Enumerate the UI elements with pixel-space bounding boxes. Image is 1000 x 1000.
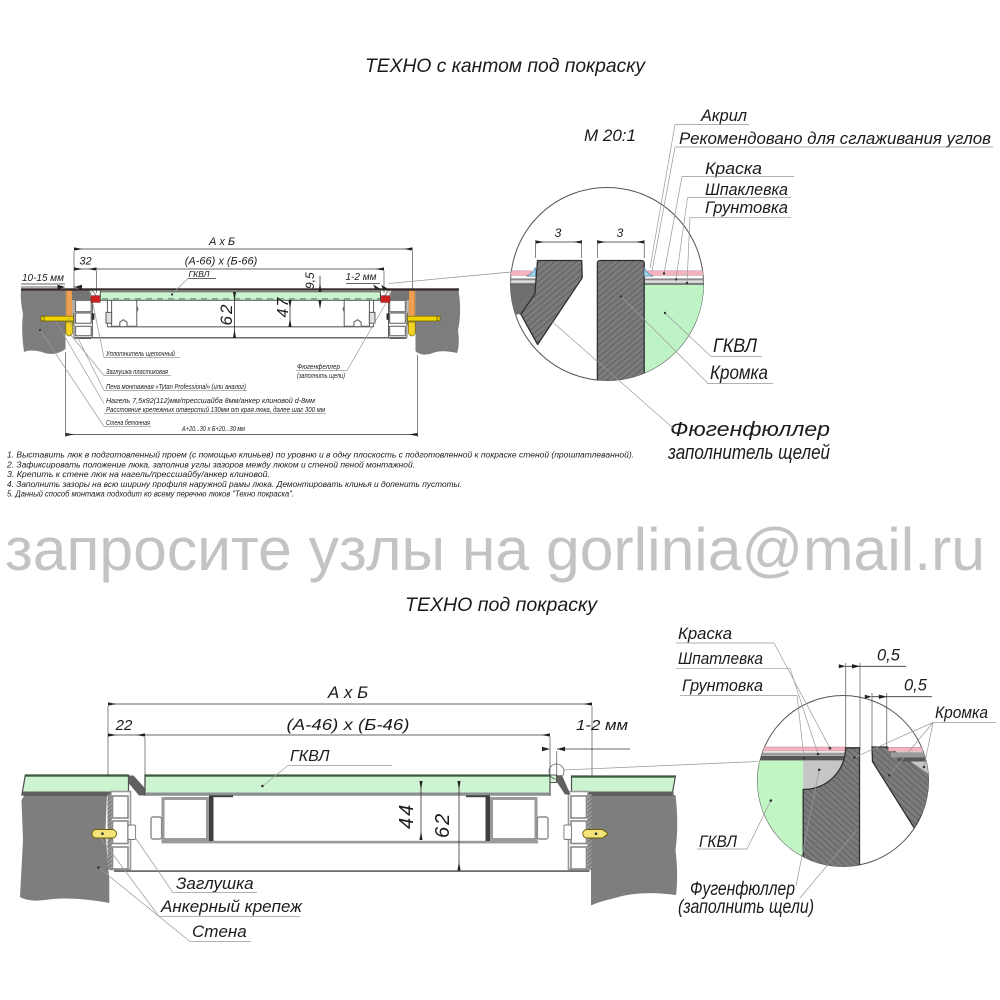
svg-text:9,5: 9,5 xyxy=(303,272,317,289)
svg-text:ГКВЛ: ГКВЛ xyxy=(290,748,329,765)
svg-text:3: 3 xyxy=(617,226,624,240)
svg-text:10-15 мм: 10-15 мм xyxy=(22,273,64,284)
svg-text:47: 47 xyxy=(275,296,292,318)
svg-text:(заполнить щели): (заполнить щели) xyxy=(678,897,814,918)
svg-text:62: 62 xyxy=(217,303,236,326)
svg-text:Расстояние крепежных отверстий: Расстояние крепежных отверстий 130мм от … xyxy=(106,405,325,414)
svg-text:Заглушка пластиковая: Заглушка пластиковая xyxy=(106,367,168,376)
svg-text:Нагель 7,5х92(112)мм/прессшайб: Нагель 7,5х92(112)мм/прессшайба 8мм/анке… xyxy=(106,396,315,405)
svg-text:Краска: Краска xyxy=(678,624,732,643)
svg-text:ГКВЛ: ГКВЛ xyxy=(189,269,210,279)
svg-text:запросите узлы на gorlinia@mai: запросите узлы на gorlinia@mail.ru xyxy=(5,516,985,583)
svg-text:Заглушка: Заглушка xyxy=(176,874,254,893)
svg-text:1-2 мм: 1-2 мм xyxy=(576,717,628,734)
svg-text:Акрил: Акрил xyxy=(700,106,747,125)
svg-text:0,5: 0,5 xyxy=(904,677,928,695)
svg-text:А х Б: А х Б xyxy=(208,236,235,248)
svg-text:Краска: Краска xyxy=(705,159,762,178)
svg-text:2. Зафиксировать положение люк: 2. Зафиксировать положение люка, заполни… xyxy=(6,459,415,469)
svg-text:3: 3 xyxy=(555,226,562,240)
svg-text:Стена бетонная: Стена бетонная xyxy=(106,418,150,427)
svg-text:А+20...30 х Б+20...30 мм: А+20...30 х Б+20...30 мм xyxy=(181,426,245,433)
svg-text:Фюгенфеллер: Фюгенфеллер xyxy=(297,362,340,371)
svg-text:ГКВЛ: ГКВЛ xyxy=(699,832,737,851)
svg-text:3. Крепить к стене люк на наге: 3. Крепить к стене люк на нагель/прессша… xyxy=(7,469,270,479)
svg-text:62: 62 xyxy=(432,812,454,838)
svg-text:4. Заполнить зазоры на всю шир: 4. Заполнить зазоры на всю ширину профил… xyxy=(7,479,462,489)
svg-text:А х Б: А х Б xyxy=(327,683,368,702)
svg-text:Стена: Стена xyxy=(192,922,247,941)
svg-text:Фюгенфюллер: Фюгенфюллер xyxy=(670,419,830,441)
svg-text:(заполнить щели): (заполнить щели) xyxy=(297,371,345,380)
svg-text:1. Выставить люк в подготовлен: 1. Выставить люк в подготовленный проем … xyxy=(7,450,634,460)
svg-text:Кромка: Кромка xyxy=(935,703,988,722)
svg-text:Уплотнитель щеточный: Уплотнитель щеточный xyxy=(105,349,175,358)
svg-text:44: 44 xyxy=(396,803,418,829)
svg-text:ТЕХНО под покраску: ТЕХНО под покраску xyxy=(405,594,598,616)
svg-text:М 20:1: М 20:1 xyxy=(584,126,636,145)
svg-text:Рекомендовано для сглаживания: Рекомендовано для сглаживания углов xyxy=(679,129,991,148)
svg-text:22: 22 xyxy=(115,717,133,734)
svg-text:5. Данный способ монтажа подхо: 5. Данный способ монтажа подходит ко все… xyxy=(7,489,294,499)
svg-text:1-2 мм: 1-2 мм xyxy=(346,272,377,283)
svg-text:ГКВЛ: ГКВЛ xyxy=(713,336,758,357)
svg-text:заполнитель щелей: заполнитель щелей xyxy=(667,442,830,464)
svg-text:0,5: 0,5 xyxy=(877,647,901,665)
svg-text:Пена монтажная «Tytan Professi: Пена монтажная «Tytan Professional» (или… xyxy=(106,382,246,391)
svg-text:Грунтовка: Грунтовка xyxy=(705,198,788,217)
svg-text:(А-66) х (Б-66): (А-66) х (Б-66) xyxy=(185,256,258,268)
svg-text:(А-46) х (Б-46): (А-46) х (Б-46) xyxy=(287,717,410,734)
svg-text:Кромка: Кромка xyxy=(710,363,768,384)
svg-text:ТЕХНО с кантом под покраску: ТЕХНО с кантом под покраску xyxy=(365,55,646,77)
svg-text:Шпатлевка: Шпатлевка xyxy=(678,649,763,668)
svg-text:Анкерный крепеж: Анкерный крепеж xyxy=(160,897,303,916)
svg-text:Шпаклевка: Шпаклевка xyxy=(705,180,788,199)
svg-text:Грунтовка: Грунтовка xyxy=(682,676,763,695)
svg-text:32: 32 xyxy=(79,256,91,268)
